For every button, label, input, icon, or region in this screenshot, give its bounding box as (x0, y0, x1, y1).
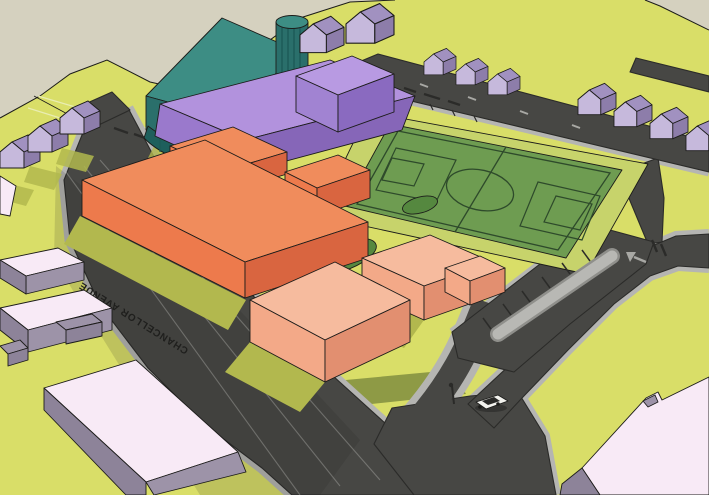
site-model-canvas: CHANCELLOR AVENUE (0, 0, 709, 495)
model-viewport[interactable]: CHANCELLOR AVENUE (0, 0, 709, 495)
car-wheel (478, 405, 482, 409)
car-wheel (496, 402, 500, 406)
tower-roof-cap (276, 16, 308, 29)
lamp-head (449, 383, 453, 387)
